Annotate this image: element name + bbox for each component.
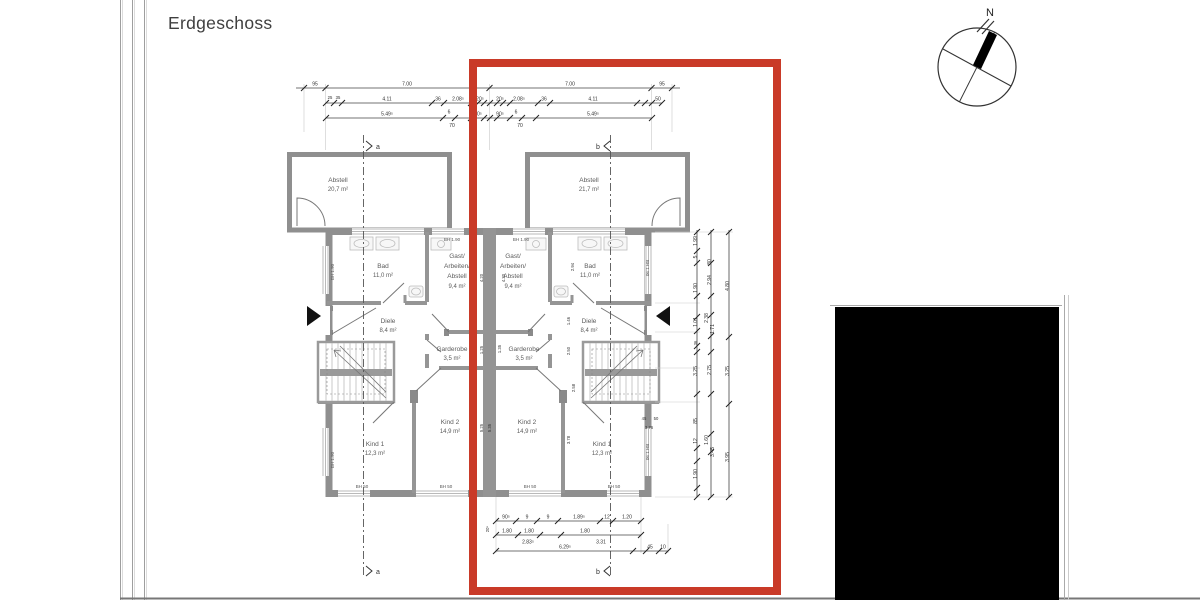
dims-right: 1.99 5 1.90 1.01 36 3.25 85 12 1.90 80 2…	[655, 229, 733, 500]
walls	[290, 155, 688, 498]
north-label: N	[986, 7, 994, 19]
dim-label: 1.20	[622, 515, 632, 521]
dim-label: 80	[707, 259, 713, 265]
dim-label: 7.00	[565, 82, 575, 88]
room-gast-left: Gast/	[449, 253, 465, 260]
dim-label: 6.29⁵	[559, 545, 571, 551]
room-gast-right-l2: Arbeiten/	[500, 263, 526, 270]
room-garderobe-left-area: 3,5 m²	[443, 356, 460, 362]
dims-top: 95 7.00 7.00 95 25 35 4.11 36 2.08⁵ 20⁵ …	[296, 82, 680, 151]
room-garderobe-right-area: 3,5 m²	[515, 356, 532, 362]
room-gast-right-area: 9,4 m²	[504, 284, 521, 290]
dim-label: 36	[693, 340, 698, 345]
section-label-b-top: b	[596, 144, 600, 151]
dim-label: 50	[655, 97, 661, 103]
dim-label: 6	[448, 110, 451, 116]
dim-label: 3.45	[710, 447, 716, 457]
dim-label: 3.78	[566, 435, 571, 444]
dim-label: 1.90	[693, 469, 699, 479]
dim-label: 1.25	[479, 345, 484, 354]
dim-label: 1.80	[524, 529, 534, 535]
dim-label: 5	[693, 255, 699, 258]
dim-label: 3.76	[645, 425, 654, 430]
dim-label: 9	[547, 515, 550, 521]
dim-label: 1.90	[693, 283, 699, 293]
entrance-arrow-left	[307, 306, 321, 326]
dim-label: 1.99	[693, 236, 699, 246]
room-gast-right: Gast/	[505, 253, 521, 260]
bh190-wall-right-1: BH 1.90	[645, 260, 650, 277]
dim-label: 2.50	[566, 346, 571, 355]
bh190-wall-left-2: BH 1.90	[330, 451, 335, 468]
dim-label: 4.20	[501, 273, 506, 282]
dim-label: 2.94	[707, 275, 713, 285]
dim-label: 4.11	[382, 97, 392, 103]
plan-viewer: Erdgeschoss	[0, 0, 1200, 600]
dim-label: 1.60	[704, 435, 710, 445]
room-gast-left-l2: Arbeiten/	[444, 263, 470, 270]
dim-label: 20⁵	[496, 97, 504, 103]
dim-label: 1.89⁵	[573, 515, 585, 521]
room-abstell-left: Abstell	[328, 177, 348, 184]
dim-label: 70	[449, 123, 455, 129]
room-kind1-right: Kind 1	[593, 441, 612, 448]
dim-label: 5.25	[479, 423, 484, 432]
dim-label: 1.46	[566, 316, 571, 325]
dim-label: 1.80	[502, 529, 512, 535]
dim-label: 9	[526, 515, 529, 521]
dim-label: 1.01	[693, 317, 699, 327]
dim-label: 36	[435, 97, 441, 103]
dim-label: 90⁵	[502, 515, 510, 521]
section-label-b-bottom: b	[596, 569, 600, 576]
room-kind1-left-area: 12,3 m²	[365, 451, 385, 457]
stairs-right	[583, 342, 659, 402]
dim-label: 45	[642, 416, 647, 421]
room-bad-left: Bad	[377, 263, 389, 270]
dim-label: 95	[659, 82, 665, 88]
compass-needle	[973, 31, 997, 69]
room-bad-right: Bad	[584, 263, 596, 270]
room-kind1-left: Kind 1	[366, 441, 385, 448]
room-garderobe-left: Garderobe	[436, 346, 467, 353]
dim-label: 35	[336, 95, 341, 100]
dim-label: 5.49⁵	[381, 112, 393, 118]
dim-label: 7.00	[402, 82, 412, 88]
dim-label: 2.08⁵	[513, 97, 525, 103]
dim-label: 3.31	[596, 540, 606, 546]
bh190-top-left: BH 1.90	[444, 237, 461, 242]
dim-label: 2.83⁵	[522, 540, 534, 546]
dim-label: 12	[604, 515, 610, 521]
room-kind1-right-area: 12,3 m²	[592, 451, 612, 457]
dim-label: 1.71	[710, 324, 716, 334]
dim-label: 12	[693, 438, 699, 444]
stairs-left	[318, 342, 394, 402]
dim-label: 10	[660, 545, 666, 551]
room-diele-right: Diele	[582, 318, 597, 325]
bh50-1: BH 50	[356, 484, 369, 489]
entrance-arrow-right	[656, 306, 670, 326]
room-garderobe-right: Garderobe	[508, 346, 539, 353]
dim-label: 20⁵	[485, 526, 490, 533]
section-label-a-top: a	[376, 144, 380, 151]
room-diele-left-area: 8,4 m²	[379, 328, 396, 334]
north-compass: N	[938, 7, 1016, 106]
room-kind2-left-area: 14,9 m²	[440, 429, 460, 435]
bh190-wall-left-1: BH 1.90	[330, 263, 335, 280]
room-diele-right-area: 8,4 m²	[580, 328, 597, 334]
dim-label: 5.35	[487, 423, 492, 432]
dim-label: 45	[647, 545, 653, 551]
section-label-a-bottom: a	[376, 569, 380, 576]
black-mask-rectangle	[835, 307, 1059, 600]
dim-label: 3.25	[693, 366, 699, 376]
room-diele-left: Diele	[381, 318, 396, 325]
dim-label: 2.08⁵	[452, 97, 464, 103]
bh50-2: BH 50	[440, 484, 453, 489]
dim-label: 70	[517, 123, 523, 129]
dim-label: 1.35	[497, 344, 502, 353]
room-gast-left-l3: Abstell	[447, 273, 467, 280]
abstell-left-walls	[290, 155, 450, 231]
dim-label: 95	[312, 82, 318, 88]
dim-label: 90⁵	[496, 112, 504, 118]
room-bad-left-area: 11,0 m²	[373, 273, 393, 279]
room-abstell-right-area: 21,7 m²	[579, 187, 599, 193]
bh50-4: BH 50	[608, 484, 621, 489]
room-kind2-left: Kind 2	[441, 419, 460, 426]
dim-label: 3.25	[725, 366, 731, 376]
dim-label: 4.11	[588, 97, 598, 103]
bh190-top-right: BH 1.90	[513, 237, 530, 242]
room-gast-left-area: 9,4 m²	[448, 284, 465, 290]
dim-label: 5.49⁵	[587, 112, 599, 118]
dims-bottom: 90⁵ 9 9 1.89⁵ 12 1.20 1.80 1.80 1.80 2.8…	[485, 497, 671, 554]
room-abstell-right: Abstell	[579, 177, 599, 184]
bh50-3: BH 50	[524, 484, 537, 489]
abstell-right-walls	[528, 155, 688, 231]
room-bad-right-area: 11,0 m²	[580, 273, 600, 279]
dim-label: 85	[693, 418, 699, 424]
dim-label: 1.80	[580, 529, 590, 535]
dim-label: 20⁵	[476, 97, 484, 103]
bh190-wall-right-2: BH 1.90	[645, 444, 650, 461]
room-gast-right-l3: Abstell	[503, 273, 523, 280]
room-kind2-right-area: 14,9 m²	[517, 429, 537, 435]
dim-label: 50	[654, 416, 659, 421]
room-kind2-right: Kind 2	[518, 419, 537, 426]
dim-label: 2.94	[570, 262, 575, 271]
dim-label: 2.58	[571, 383, 576, 392]
dim-label: 36	[541, 97, 547, 103]
party-wall	[483, 228, 496, 497]
room-abstell-left-area: 20,7 m²	[328, 187, 348, 193]
dim-label: 2.38	[704, 313, 710, 323]
floor-plan-canvas: a b a b Abstell 20,7 m² Abstell 21,7 m² …	[0, 0, 1200, 600]
dim-label: 25	[328, 95, 333, 100]
dim-label: 4.20	[479, 273, 484, 282]
dim-label: 6	[515, 110, 518, 116]
dim-label: 2.75	[707, 365, 713, 375]
dim-label: 3.95	[725, 452, 731, 462]
dim-label: 4.80	[725, 281, 731, 291]
